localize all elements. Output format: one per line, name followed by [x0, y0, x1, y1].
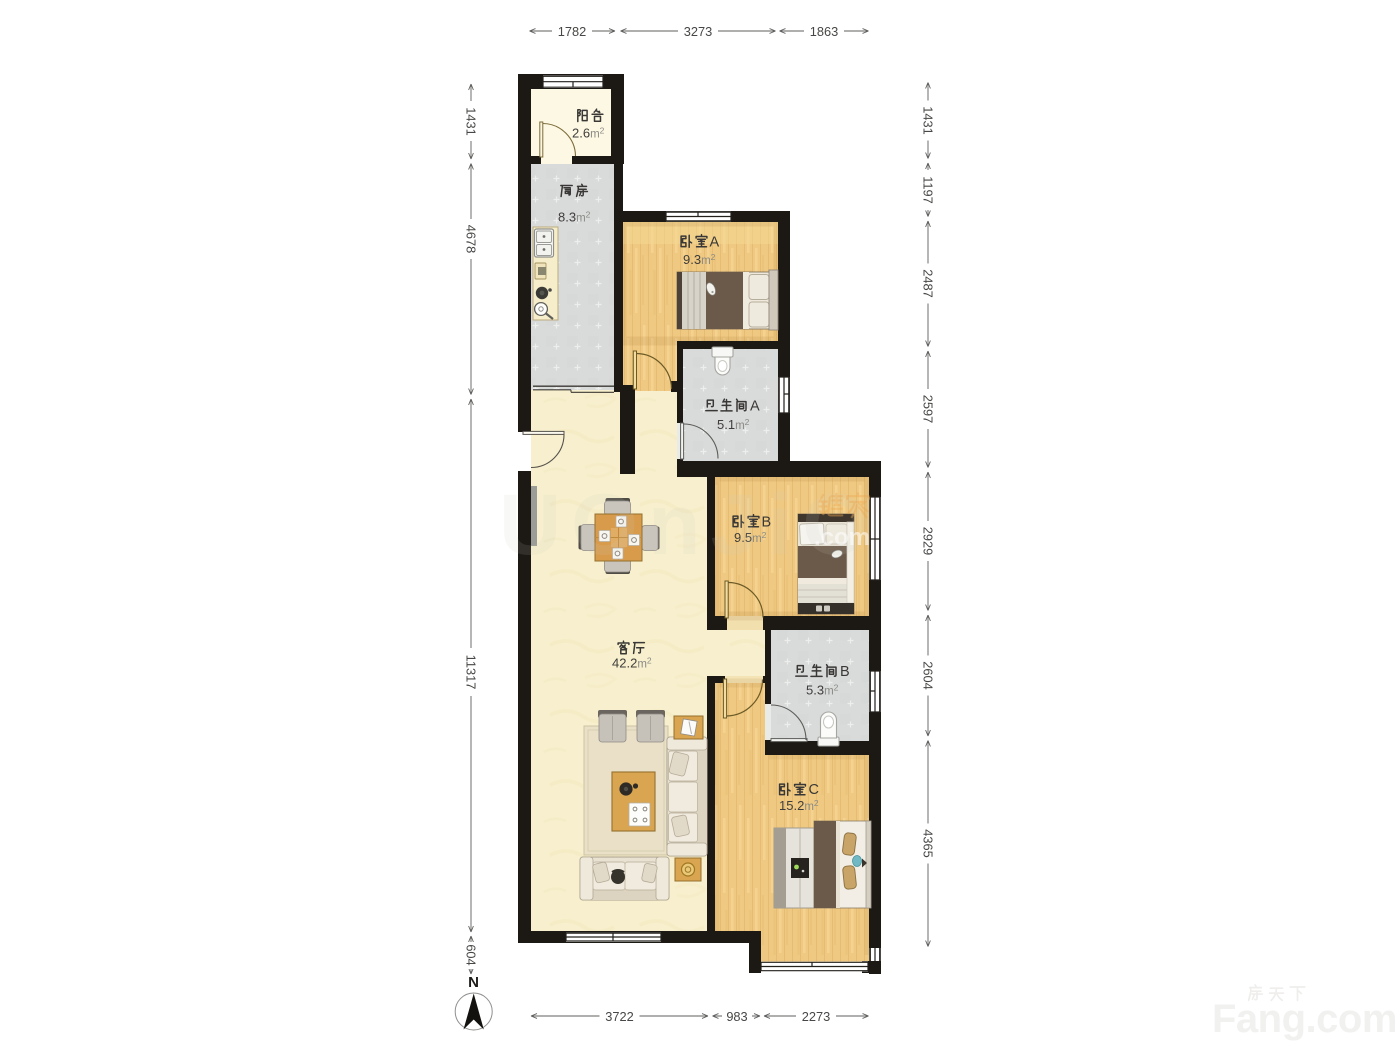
svg-text:983: 983 [726, 1009, 747, 1024]
svg-text:3273: 3273 [684, 24, 712, 39]
svg-text:1431: 1431 [921, 106, 936, 134]
svg-text:2273: 2273 [802, 1009, 830, 1024]
svg-text:4678: 4678 [464, 225, 479, 253]
svg-text:2487: 2487 [921, 269, 936, 297]
svg-text:2597: 2597 [921, 395, 936, 423]
svg-text:A: A [710, 235, 720, 251]
svg-text:42.2m2: 42.2m2 [612, 656, 652, 671]
svg-text:1782: 1782 [558, 24, 586, 39]
svg-text:1431: 1431 [464, 107, 479, 135]
svg-text:.com: .com [814, 524, 870, 551]
svg-text:B: B [840, 664, 850, 680]
svg-text:1197: 1197 [921, 176, 936, 204]
svg-text:2929: 2929 [921, 527, 936, 555]
svg-text:3722: 3722 [605, 1009, 633, 1024]
svg-text:N: N [468, 974, 479, 991]
svg-text:4365: 4365 [921, 829, 936, 857]
svg-text:C: C [809, 782, 819, 798]
svg-text:A: A [750, 399, 760, 415]
svg-text:2604: 2604 [921, 661, 936, 689]
svg-text:15.2m2: 15.2m2 [779, 798, 819, 813]
svg-text:11317: 11317 [464, 655, 479, 690]
svg-text:Fang.com: Fang.com [1212, 997, 1397, 1041]
svg-text:1863: 1863 [810, 24, 838, 39]
svg-text:604: 604 [464, 944, 479, 965]
